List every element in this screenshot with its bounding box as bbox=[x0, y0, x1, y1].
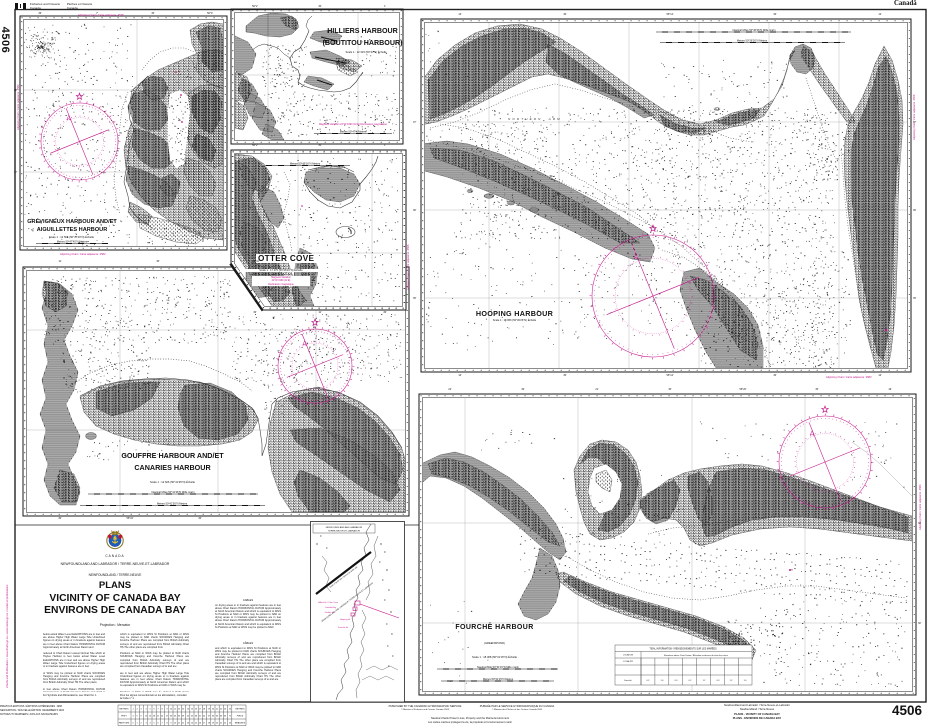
svg-text:Metres 50°41'36"N Metres: Metres 50°41'36"N Metres bbox=[157, 501, 188, 505]
svg-text:Nautical Miles 50°41'36"N Mill: Nautical Miles 50°41'36"N Mille marin bbox=[151, 490, 195, 494]
